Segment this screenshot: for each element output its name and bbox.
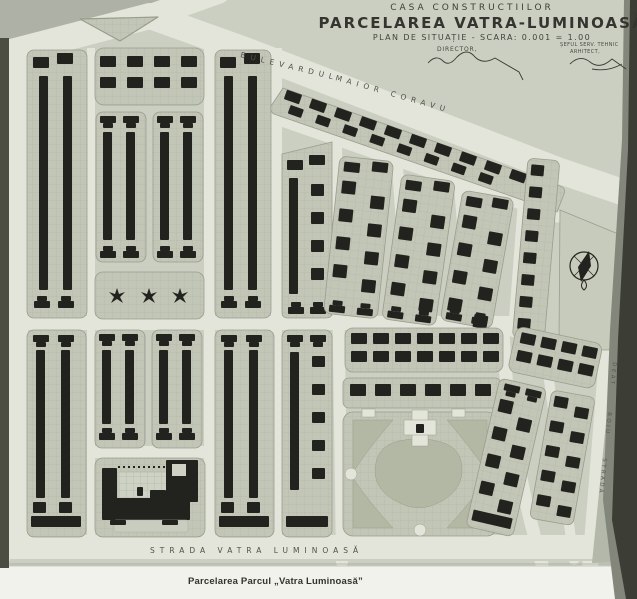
city-block [215,330,274,537]
city-block [152,330,202,448]
park-trees [95,272,204,319]
bottom-street-label: STRADA VATRA LUMINOASĂ [150,546,363,555]
plan-subtitle: PLAN DE SITUAȚIE - SCARA: 0.001 = 1.00 [373,33,591,43]
city-block [153,112,203,262]
city-block [282,142,332,318]
city-block [95,330,145,448]
director-label: DIRECTOR, [437,46,477,53]
city-block [215,50,271,318]
org-title: CASA CONSTRUCTIILOR [390,3,554,13]
city-block [282,330,332,537]
city-block [27,50,87,318]
city-block [345,328,503,372]
page-title: PARCELAREA VATRA-LUMINOASĂ [318,13,637,32]
photo-caption: Parcelarea Parcul „Vatra Luminoasă” [188,576,363,587]
architect-label: ARHITECT, [570,49,600,55]
city-block [343,378,501,408]
city-block [95,48,204,105]
map-page: CASA CONSTRUCTIILOR PARCELAREA VATRA-LUM… [0,0,637,599]
city-block [27,330,86,537]
chief-engineer-label: ȘEFUL SERV. TEHNIC [560,42,619,48]
map-geometry [0,0,637,599]
site-plan-svg: CASA CONSTRUCTIILOR PARCELAREA VATRA-LUM… [0,0,637,599]
city-block [96,112,146,262]
public-building [95,458,205,537]
